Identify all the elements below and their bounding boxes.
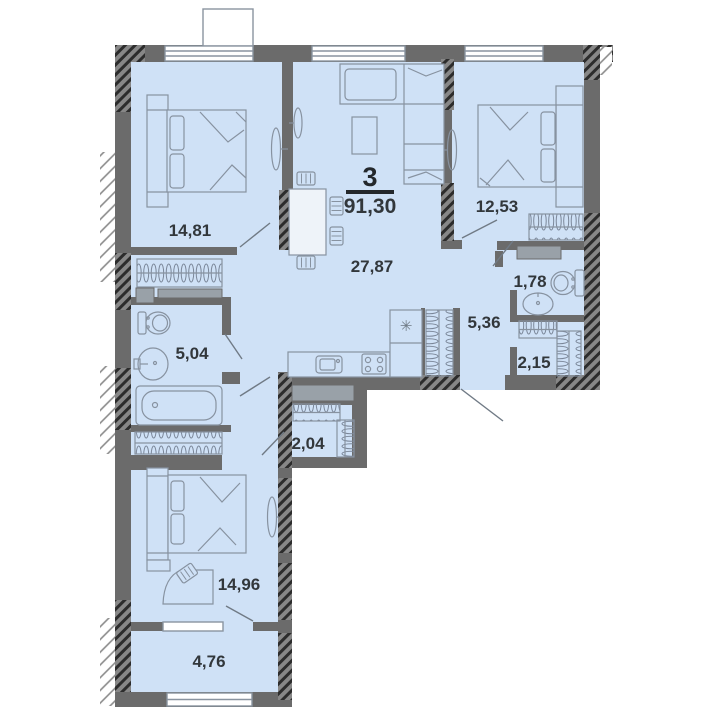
area-label-bedroom-1: 14,81 [169, 221, 212, 240]
bed-double-bedroom-1 [147, 95, 246, 207]
roof-duct-box [203, 9, 253, 46]
total-area-label: 91,30 [344, 195, 397, 218]
fridge: ✳ [390, 310, 422, 377]
area-label-bedroom-3: 14,96 [218, 575, 261, 594]
area-label-wardrobe-center: 2,04 [291, 434, 325, 453]
kitchen-counter [288, 352, 390, 377]
window-balcony [167, 693, 252, 706]
rooms-count-label: 3 [362, 162, 377, 192]
summary-divider [346, 190, 394, 194]
area-label-wardrobe-right: 2,15 [517, 353, 550, 372]
area-label-hallway: 5,36 [467, 313, 500, 332]
window-bedroom-top-right [465, 46, 543, 61]
area-label-bathroom: 5,04 [175, 344, 209, 363]
toilet-wc [551, 270, 584, 296]
balcony-door-window [163, 622, 223, 631]
snowflake-icon: ✳ [400, 317, 413, 335]
coffee-table [352, 117, 377, 154]
wardrobe-bedroom-2 [529, 214, 583, 240]
window-living [312, 46, 405, 61]
area-label-wc: 1,78 [513, 272, 546, 291]
sink-wc [523, 293, 553, 315]
bathtub [136, 386, 222, 425]
floor-plan-svg: ✳ [0, 0, 720, 720]
floor-plan-canvas: ✳ [0, 0, 720, 720]
closet-rail-bedroom-1 [137, 259, 222, 287]
hall-closet-rail [426, 310, 453, 376]
area-label-bedroom-2: 12,53 [476, 197, 519, 216]
window-bedroom-top-left [165, 46, 253, 61]
toilet-bathroom [138, 312, 170, 334]
closet-rail-corridor [135, 432, 222, 454]
door-entrance [461, 389, 503, 421]
area-label-living: 27,87 [351, 257, 394, 276]
area-label-balcony: 4,76 [192, 652, 225, 671]
